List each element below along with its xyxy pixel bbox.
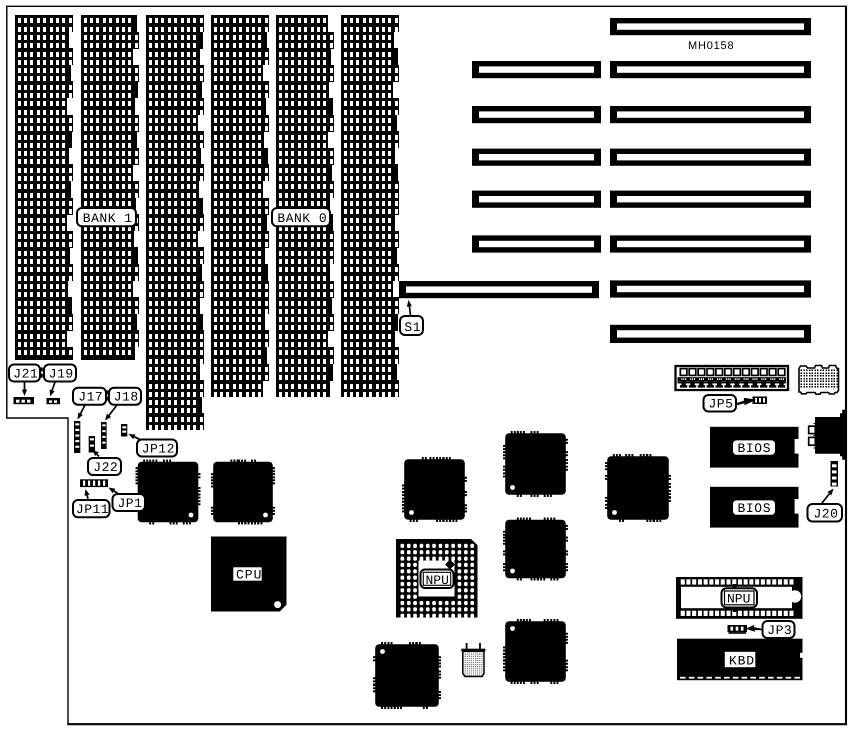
svg-text:J17: J17	[78, 390, 103, 405]
svg-text:BIOS: BIOS	[738, 441, 772, 456]
svg-text:JP12: JP12	[142, 441, 175, 456]
svg-text:BANK 0: BANK 0	[277, 211, 327, 226]
svg-text:J19: J19	[49, 366, 74, 381]
svg-text:NPU: NPU	[426, 573, 449, 588]
svg-text:JP5: JP5	[709, 396, 734, 411]
svg-text:NPU: NPU	[727, 591, 750, 606]
svg-text:JP11: JP11	[76, 502, 109, 517]
svg-text:J22: J22	[93, 460, 118, 475]
svg-text:CPU: CPU	[236, 568, 262, 583]
svg-text:BIOS: BIOS	[738, 501, 772, 516]
svg-text:KBD: KBD	[729, 653, 755, 668]
svg-text:J18: J18	[114, 390, 139, 405]
svg-text:JP1: JP1	[118, 496, 143, 511]
svg-text:S1: S1	[404, 320, 421, 335]
svg-text:JP3: JP3	[767, 623, 792, 638]
svg-text:J20: J20	[814, 506, 839, 521]
svg-text:J21: J21	[13, 366, 38, 381]
svg-text:BANK 1: BANK 1	[83, 211, 133, 226]
svg-text:MH0158: MH0158	[688, 40, 734, 52]
